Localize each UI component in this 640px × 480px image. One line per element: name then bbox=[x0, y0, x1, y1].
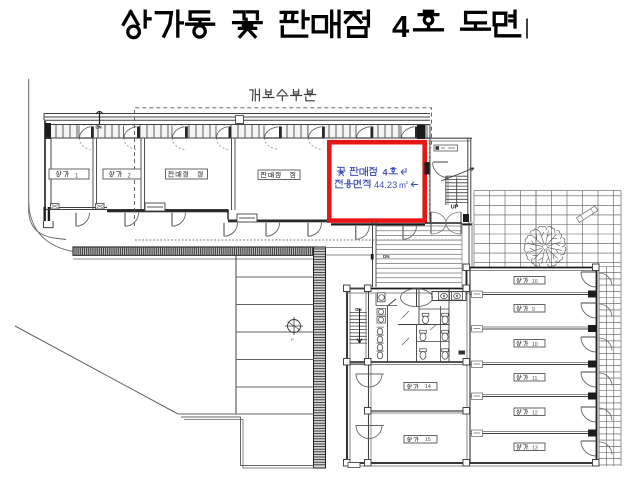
svg-text:44.23: 44.23 bbox=[374, 180, 397, 190]
svg-text:DN: DN bbox=[96, 125, 102, 130]
svg-text:4: 4 bbox=[392, 9, 410, 44]
svg-text:P: P bbox=[291, 337, 294, 342]
svg-text:15: 15 bbox=[425, 437, 431, 443]
svg-text:10: 10 bbox=[532, 342, 538, 348]
svg-text:12: 12 bbox=[532, 411, 538, 417]
svg-text:2: 2 bbox=[406, 180, 409, 186]
svg-text:UP: UP bbox=[451, 205, 459, 211]
svg-text:9: 9 bbox=[532, 307, 535, 313]
svg-text:11: 11 bbox=[532, 376, 537, 382]
svg-text:13: 13 bbox=[532, 446, 538, 452]
svg-text:4: 4 bbox=[383, 168, 388, 178]
svg-text:16: 16 bbox=[532, 279, 538, 285]
svg-text:DN: DN bbox=[355, 307, 361, 312]
svg-text:14: 14 bbox=[425, 384, 431, 390]
svg-text:DN: DN bbox=[383, 254, 390, 259]
